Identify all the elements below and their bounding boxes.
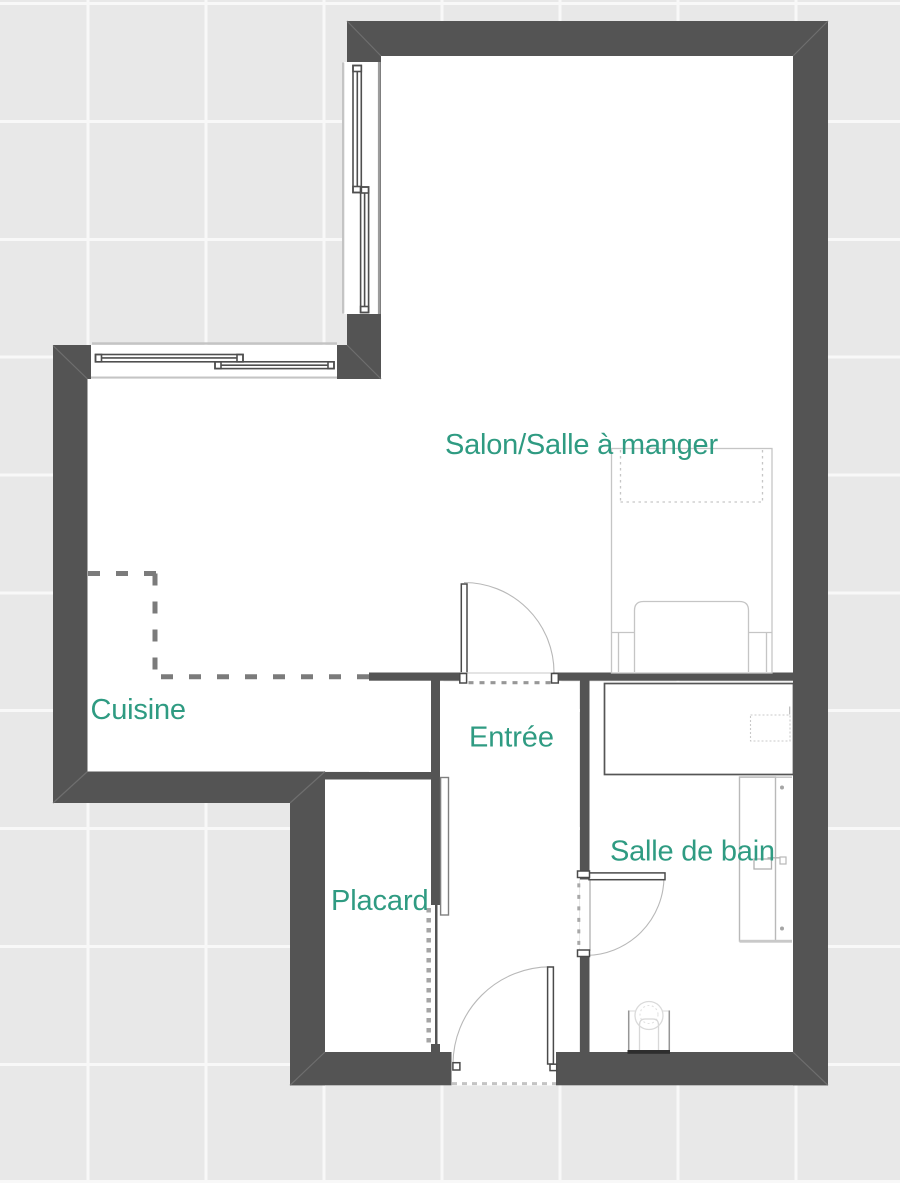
svg-text:Salon/Salle à manger: Salon/Salle à manger (445, 429, 718, 461)
svg-text:Entrée: Entrée (469, 722, 554, 754)
svg-text:Placard: Placard (331, 885, 429, 917)
svg-text:Cuisine: Cuisine (91, 694, 186, 726)
svg-text:Salle de bain: Salle de bain (610, 836, 775, 868)
